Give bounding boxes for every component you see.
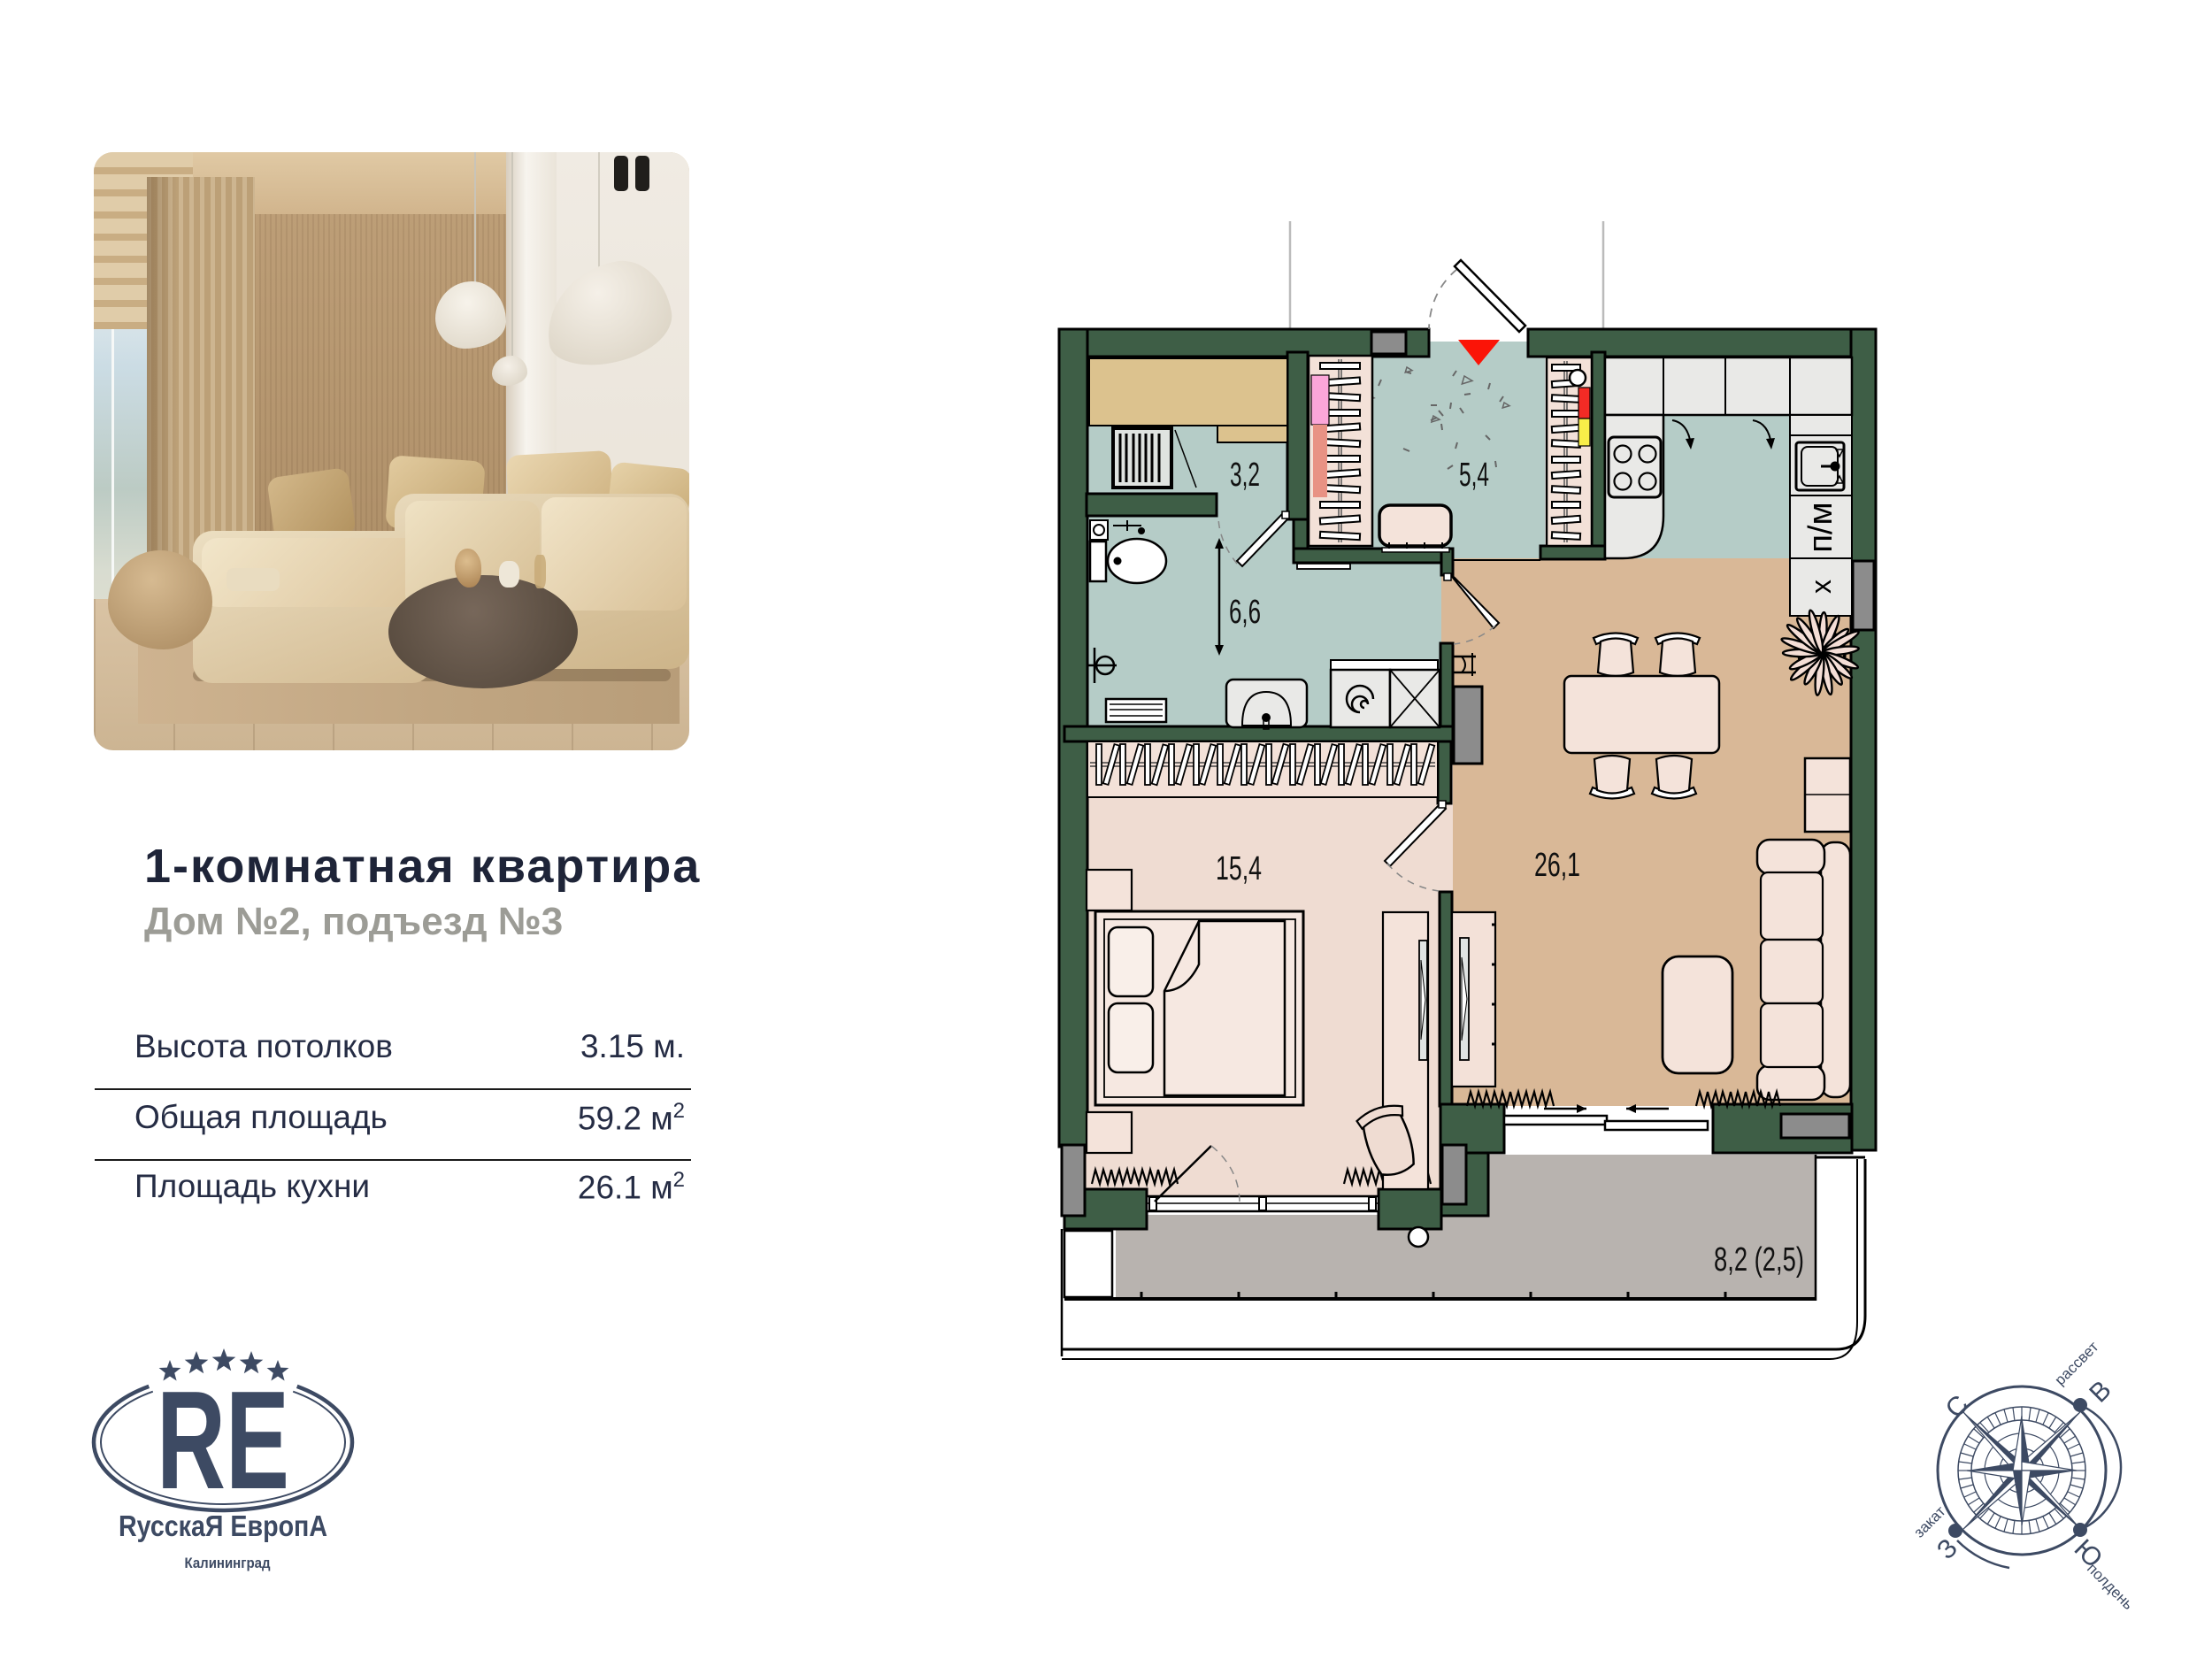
- svg-text:3,2: 3,2: [1230, 457, 1260, 494]
- svg-text:Калининград: Калининград: [185, 1555, 271, 1571]
- svg-text:п/м: п/м: [1802, 502, 1839, 552]
- svg-text:6,6: 6,6: [1229, 594, 1261, 631]
- svg-text:полдень: полдень: [2084, 1560, 2137, 1613]
- svg-text:15,4: 15,4: [1216, 850, 1262, 887]
- svg-text:х: х: [1805, 580, 1837, 594]
- svg-text:В: В: [2084, 1375, 2116, 1408]
- svg-text:RусскаЯ ЕвропА: RусскаЯ ЕвропА: [119, 1509, 327, 1542]
- svg-text:З: З: [1932, 1533, 1963, 1565]
- svg-text:RE: RE: [157, 1363, 289, 1518]
- svg-text:26,1: 26,1: [1534, 847, 1580, 884]
- svg-text:8,2 (2,5): 8,2 (2,5): [1714, 1241, 1804, 1279]
- svg-text:5,4: 5,4: [1459, 457, 1489, 494]
